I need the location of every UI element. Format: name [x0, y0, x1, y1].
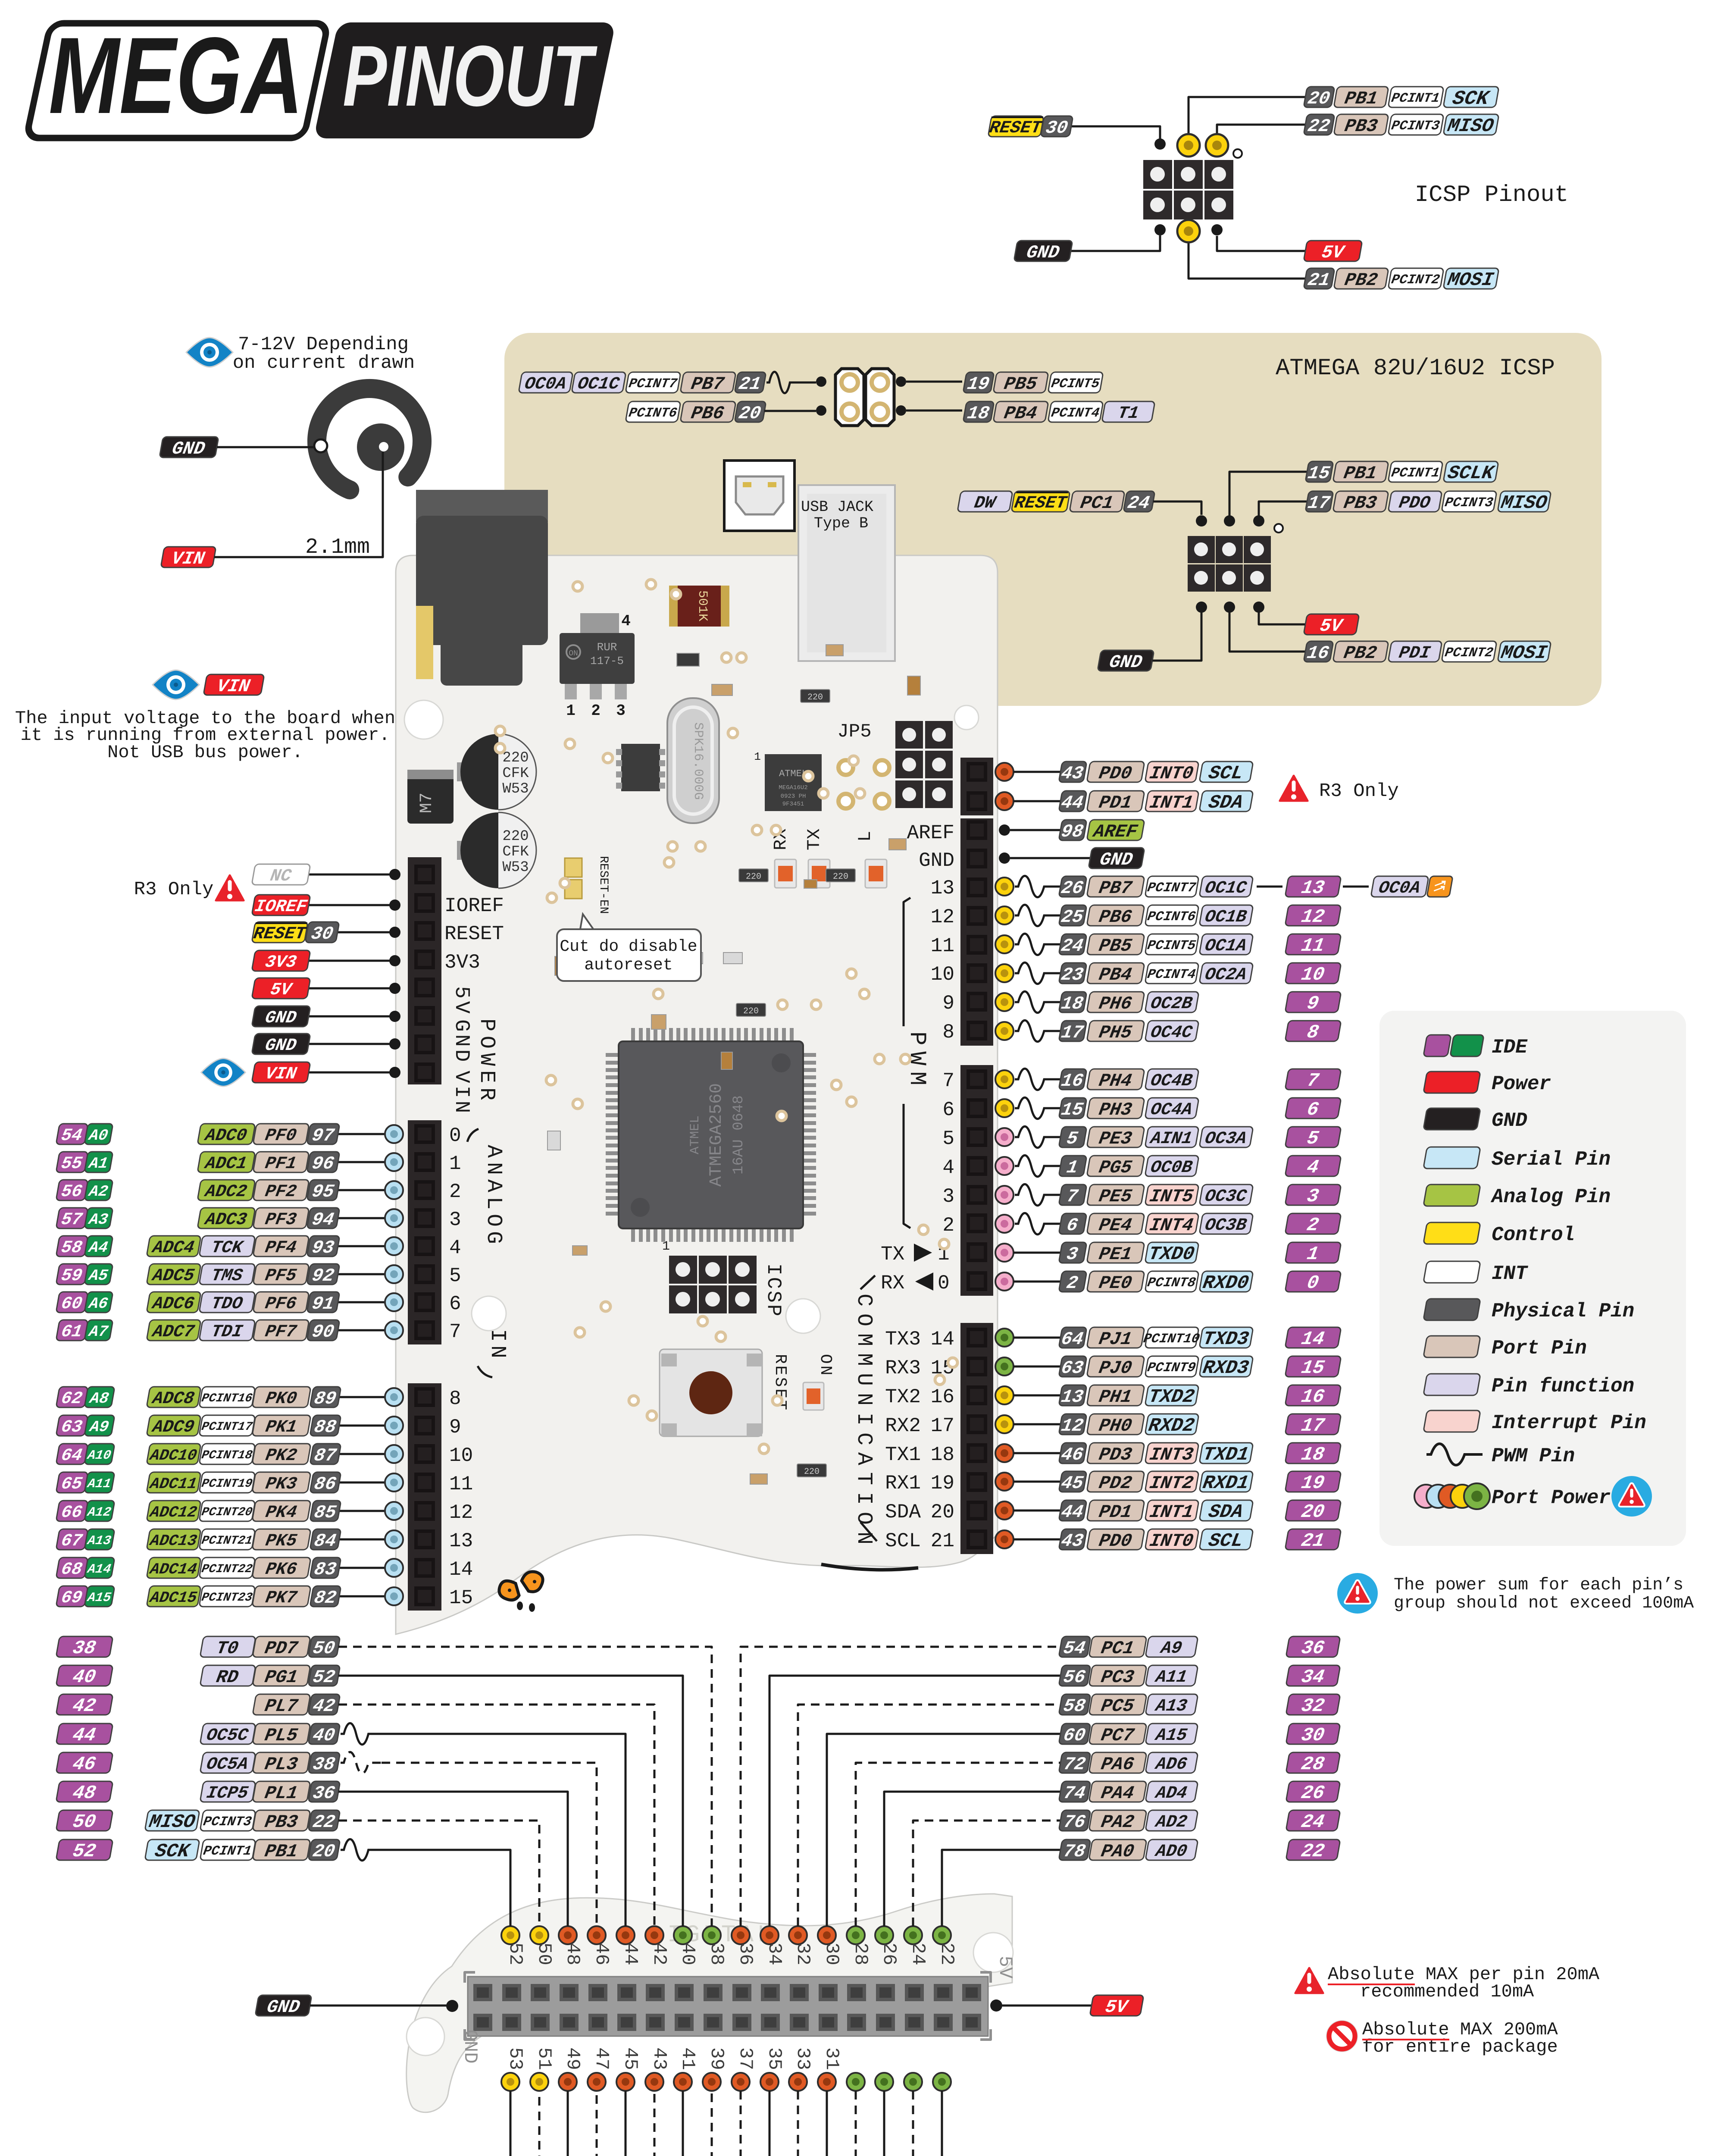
svg-text:47: 47: [591, 2047, 612, 2070]
svg-text:39: 39: [706, 2047, 727, 2070]
svg-text:ADC1: ADC1: [202, 1154, 248, 1174]
svg-text:PK4: PK4: [264, 1503, 298, 1523]
svg-text:Not USB bus power.: Not USB bus power.: [107, 742, 303, 763]
svg-text:ADC12: ADC12: [148, 1504, 198, 1521]
svg-text:48: 48: [562, 1943, 583, 1965]
svg-text:RXD1: RXD1: [1201, 1473, 1250, 1494]
svg-text:RXD2: RXD2: [1147, 1415, 1196, 1437]
svg-text:30: 30: [310, 924, 335, 944]
svg-text:GND: GND: [1107, 652, 1144, 673]
svg-text:26: 26: [878, 1943, 900, 1965]
svg-text:20: 20: [931, 1501, 954, 1523]
svg-text:PK2: PK2: [264, 1446, 298, 1466]
svg-text:A15: A15: [1153, 1726, 1189, 1745]
svg-text:66: 66: [59, 1503, 84, 1523]
svg-text:INT1: INT1: [1148, 1502, 1195, 1523]
svg-text:PK3: PK3: [264, 1474, 298, 1494]
svg-text:MISO: MISO: [147, 1811, 197, 1833]
svg-text:PCINT7: PCINT7: [1146, 881, 1198, 896]
svg-text:55: 55: [59, 1154, 84, 1174]
svg-text:56: 56: [1062, 1667, 1087, 1688]
svg-text:12: 12: [931, 906, 954, 928]
svg-text:PA2: PA2: [1099, 1812, 1135, 1833]
svg-text:9F3451: 9F3451: [782, 801, 804, 808]
svg-text:A3: A3: [87, 1211, 109, 1228]
svg-text:PCINT8: PCINT8: [1146, 1275, 1197, 1291]
svg-text:ADC15: ADC15: [148, 1589, 198, 1607]
svg-text:OC2A: OC2A: [1203, 965, 1248, 985]
svg-text:45: 45: [1060, 1473, 1085, 1494]
svg-text:PK6: PK6: [264, 1560, 298, 1579]
svg-text:VIN: VIN: [263, 1064, 298, 1084]
svg-text:50: 50: [71, 1811, 98, 1833]
svg-text:PK1: PK1: [264, 1417, 298, 1437]
svg-text:63: 63: [59, 1417, 84, 1437]
svg-text:78: 78: [1062, 1841, 1087, 1862]
svg-text:38: 38: [706, 1943, 727, 1965]
svg-text:5V: 5V: [450, 986, 473, 1016]
svg-text:12: 12: [449, 1501, 473, 1524]
svg-text:A9: A9: [88, 1418, 110, 1436]
svg-text:PCINT2: PCINT2: [1390, 273, 1441, 288]
svg-text:PE1: PE1: [1097, 1244, 1133, 1265]
svg-text:PINOUT: PINOUT: [343, 28, 597, 124]
svg-text:18: 18: [1300, 1444, 1326, 1466]
svg-text:TXD2: TXD2: [1147, 1386, 1196, 1408]
svg-text:93: 93: [310, 1238, 336, 1258]
svg-text:PCINT9: PCINT9: [1146, 1360, 1197, 1376]
svg-text:GND: GND: [1492, 1109, 1527, 1132]
svg-text:PD3: PD3: [1097, 1445, 1133, 1465]
svg-text:53: 53: [504, 2047, 526, 2070]
svg-text:11: 11: [449, 1473, 473, 1495]
svg-text:COMMUNICATION: COMMUNICATION: [851, 1294, 876, 1551]
svg-text:57: 57: [59, 1210, 84, 1230]
svg-text:GND: GND: [1025, 242, 1061, 263]
svg-text:1: 1: [662, 1239, 670, 1254]
svg-text:220: 220: [833, 872, 848, 882]
svg-text:54: 54: [1062, 1638, 1087, 1659]
svg-text:PCINT18: PCINT18: [200, 1449, 253, 1462]
svg-text:GND: GND: [170, 439, 206, 459]
svg-text:RESET: RESET: [252, 924, 308, 944]
svg-text:AREF: AREF: [907, 822, 954, 844]
svg-text:20: 20: [737, 403, 763, 424]
svg-text:PCINT3: PCINT3: [1390, 119, 1441, 134]
svg-text:NC: NC: [269, 866, 293, 886]
svg-text:5: 5: [942, 1128, 954, 1150]
svg-text:PF0: PF0: [263, 1126, 298, 1146]
svg-text:2: 2: [449, 1181, 461, 1203]
svg-text:PK0: PK0: [264, 1389, 298, 1409]
svg-text:RESET-EN: RESET-EN: [597, 856, 610, 914]
svg-text:1: 1: [449, 1153, 461, 1175]
svg-text:PCINT17: PCINT17: [200, 1420, 254, 1434]
svg-text:PCINT1: PCINT1: [1390, 466, 1441, 481]
svg-text:36: 36: [311, 1783, 337, 1804]
svg-text:18: 18: [1060, 993, 1085, 1014]
svg-text:30: 30: [821, 1943, 842, 1965]
svg-text:48: 48: [71, 1783, 98, 1804]
svg-text:TXD0: TXD0: [1147, 1244, 1196, 1265]
svg-text:AIN1: AIN1: [1148, 1129, 1194, 1149]
svg-text:PH1: PH1: [1097, 1387, 1133, 1407]
svg-text:Interrupt Pin: Interrupt Pin: [1492, 1412, 1646, 1434]
svg-text:56: 56: [59, 1182, 84, 1202]
svg-text:68: 68: [59, 1560, 84, 1579]
svg-text:RXD3: RXD3: [1201, 1357, 1250, 1379]
svg-text:MOSI: MOSI: [1445, 269, 1495, 291]
svg-text:PD7: PD7: [263, 1638, 300, 1659]
svg-text:PE3: PE3: [1097, 1128, 1133, 1149]
svg-text:17: 17: [931, 1415, 954, 1437]
svg-text:ATMEGA2560: ATMEGA2560: [707, 1083, 726, 1187]
svg-text:TMS: TMS: [210, 1266, 244, 1286]
svg-text:PH0: PH0: [1097, 1416, 1133, 1436]
svg-text:PB3: PB3: [1342, 493, 1378, 514]
svg-text:26: 26: [1300, 1783, 1326, 1804]
svg-text:OC1B: OC1B: [1203, 907, 1248, 927]
svg-text:GND: GND: [450, 1019, 473, 1064]
svg-text:11: 11: [931, 935, 954, 957]
svg-text:PC7: PC7: [1099, 1725, 1136, 1746]
svg-text:PB2: PB2: [1343, 270, 1379, 291]
svg-text:PD1: PD1: [1097, 1502, 1133, 1523]
svg-text:group should not exceed 100mA: group should not exceed 100mA: [1394, 1594, 1694, 1613]
svg-text:3: 3: [942, 1185, 954, 1208]
svg-text:A13: A13: [85, 1534, 112, 1548]
svg-text:PB7: PB7: [689, 374, 726, 395]
svg-text:60: 60: [1062, 1725, 1087, 1746]
svg-text:40: 40: [677, 1943, 698, 1965]
svg-text:PCINT21: PCINT21: [200, 1534, 253, 1548]
svg-text:36: 36: [735, 1943, 756, 1965]
svg-text:98: 98: [1060, 821, 1085, 842]
svg-text:SCK: SCK: [153, 1841, 192, 1862]
svg-text:3: 3: [616, 702, 626, 720]
svg-text:7: 7: [449, 1321, 461, 1343]
svg-text:OC5C: OC5C: [205, 1726, 250, 1745]
svg-text:22: 22: [936, 1943, 957, 1965]
svg-text:54: 54: [59, 1126, 84, 1146]
svg-text:62: 62: [59, 1389, 84, 1409]
svg-text:IOREF: IOREF: [444, 895, 504, 917]
svg-text:INT5: INT5: [1148, 1186, 1195, 1207]
svg-text:PK7: PK7: [264, 1588, 299, 1608]
svg-text:18: 18: [966, 403, 991, 424]
svg-text:5V: 5V: [994, 1956, 1016, 1979]
svg-text:17: 17: [1306, 493, 1332, 514]
svg-text:4: 4: [621, 612, 631, 630]
svg-text:32: 32: [1300, 1695, 1326, 1717]
svg-text:RX1: RX1: [885, 1472, 921, 1495]
svg-text:15: 15: [449, 1587, 473, 1609]
svg-text:38: 38: [71, 1638, 98, 1659]
svg-text:ATMEL: ATMEL: [688, 1116, 703, 1154]
svg-text:PB6: PB6: [1097, 907, 1133, 928]
svg-text:13: 13: [1300, 877, 1326, 899]
svg-text:PL1: PL1: [263, 1783, 299, 1804]
svg-text:PL7: PL7: [263, 1696, 300, 1717]
svg-text:GND: GND: [265, 1997, 301, 2018]
svg-text:PDI: PDI: [1397, 643, 1432, 663]
svg-text:A1: A1: [87, 1155, 109, 1172]
svg-text:IN: IN: [485, 1329, 510, 1362]
svg-text:8: 8: [449, 1388, 461, 1410]
svg-text:ICP5: ICP5: [205, 1783, 250, 1803]
svg-text:SCL: SCL: [1207, 1530, 1245, 1552]
svg-text:5: 5: [449, 1265, 461, 1287]
svg-text:3: 3: [449, 1209, 461, 1231]
svg-text:6: 6: [449, 1293, 461, 1315]
svg-text:PB3: PB3: [263, 1812, 299, 1833]
svg-text:A11: A11: [85, 1477, 112, 1492]
svg-text:RX2: RX2: [885, 1415, 921, 1437]
svg-text:PB3: PB3: [1343, 116, 1379, 137]
svg-text:ATMEGA 82U/16U2 ICSP: ATMEGA 82U/16U2 ICSP: [1276, 355, 1555, 382]
svg-text:A15: A15: [85, 1591, 112, 1605]
svg-text:OC4A: OC4A: [1149, 1100, 1194, 1120]
svg-text:87: 87: [313, 1445, 338, 1466]
svg-text:58: 58: [1062, 1696, 1087, 1717]
svg-text:24: 24: [1060, 936, 1085, 956]
svg-text:PB6: PB6: [689, 403, 726, 424]
svg-text:PE4: PE4: [1097, 1215, 1133, 1236]
svg-text:ADC6: ADC6: [150, 1294, 196, 1314]
svg-text:76: 76: [1062, 1812, 1087, 1833]
svg-text:TX1: TX1: [885, 1444, 921, 1466]
svg-text:16: 16: [1300, 1386, 1326, 1408]
svg-text:ADC4: ADC4: [150, 1238, 196, 1258]
svg-text:ON: ON: [569, 649, 578, 658]
svg-text:MEGA16U2: MEGA16U2: [779, 784, 807, 791]
svg-text:PF4: PF4: [263, 1238, 298, 1258]
svg-text:21: 21: [931, 1530, 954, 1552]
svg-text:PC1: PC1: [1079, 493, 1115, 514]
svg-text:9: 9: [449, 1416, 461, 1438]
svg-text:IDE: IDE: [1492, 1036, 1528, 1059]
svg-text:OC0A: OC0A: [1377, 878, 1422, 898]
svg-text:89: 89: [313, 1388, 338, 1409]
svg-text:58: 58: [59, 1238, 84, 1258]
svg-text:12: 12: [1300, 906, 1326, 928]
svg-text:VIN: VIN: [170, 548, 206, 569]
svg-text:19: 19: [966, 374, 991, 395]
svg-text:33: 33: [792, 2047, 813, 2070]
svg-text:PCINT10: PCINT10: [1142, 1332, 1201, 1347]
svg-text:AD0: AD0: [1153, 1842, 1189, 1861]
svg-text:0: 0: [449, 1125, 461, 1147]
svg-text:26: 26: [1060, 878, 1085, 899]
svg-text:95: 95: [310, 1181, 336, 1202]
svg-text:AREF: AREF: [1091, 821, 1140, 842]
svg-text:30: 30: [1300, 1725, 1326, 1746]
svg-text:ICSP: ICSP: [762, 1263, 785, 1318]
svg-text:PL5: PL5: [263, 1725, 299, 1746]
svg-text:37: 37: [735, 2047, 756, 2070]
svg-text:PF7: PF7: [263, 1322, 298, 1342]
svg-text:PK5: PK5: [264, 1531, 298, 1551]
svg-text:19: 19: [1300, 1473, 1326, 1494]
svg-text:ADC10: ADC10: [148, 1447, 198, 1464]
svg-text:117-5: 117-5: [590, 655, 624, 667]
svg-text:220: 220: [502, 828, 529, 845]
svg-text:ADC7: ADC7: [150, 1322, 196, 1342]
svg-text:INT3: INT3: [1148, 1445, 1195, 1465]
svg-text:35: 35: [763, 2047, 785, 2070]
svg-text:SCL: SCL: [885, 1530, 921, 1552]
svg-text:84: 84: [313, 1531, 338, 1551]
svg-text:23: 23: [1060, 965, 1085, 985]
svg-text:31: 31: [821, 2047, 842, 2070]
svg-text:RUR: RUR: [597, 641, 617, 654]
svg-text:1: 1: [566, 702, 576, 720]
svg-text:A4: A4: [87, 1239, 109, 1257]
svg-text:50: 50: [311, 1638, 337, 1659]
svg-text:W53: W53: [502, 859, 529, 876]
svg-text:INT2: INT2: [1148, 1473, 1195, 1494]
svg-text:94: 94: [310, 1210, 336, 1230]
svg-text:IOREF: IOREF: [253, 897, 309, 917]
svg-text:PH3: PH3: [1097, 1100, 1133, 1120]
svg-text:PF1: PF1: [263, 1154, 298, 1174]
svg-text:A10: A10: [85, 1448, 112, 1463]
svg-text:ADC14: ADC14: [148, 1561, 198, 1578]
svg-text:ADC8: ADC8: [150, 1389, 196, 1409]
svg-text:92: 92: [310, 1266, 336, 1286]
svg-text:GND: GND: [263, 1008, 298, 1028]
svg-text:PCINT1: PCINT1: [202, 1844, 253, 1859]
svg-text:PCINT22: PCINT22: [200, 1563, 253, 1576]
svg-text:ADC2: ADC2: [202, 1182, 248, 1202]
svg-text:64: 64: [1060, 1329, 1085, 1350]
svg-text:50: 50: [533, 1943, 555, 1965]
svg-text:12: 12: [1060, 1416, 1085, 1436]
svg-text:PH6: PH6: [1097, 993, 1133, 1014]
svg-text:GND: GND: [263, 1036, 298, 1056]
svg-text:RESET: RESET: [444, 923, 504, 945]
svg-text:PCINT20: PCINT20: [200, 1506, 253, 1519]
svg-text:0923 PH: 0923 PH: [781, 793, 806, 800]
svg-text:OC0B: OC0B: [1149, 1158, 1194, 1178]
svg-text:14: 14: [931, 1328, 954, 1351]
svg-text:A14: A14: [85, 1562, 112, 1577]
svg-text:PJ0: PJ0: [1097, 1358, 1133, 1379]
svg-text:PE5: PE5: [1097, 1186, 1133, 1207]
svg-text:52: 52: [71, 1841, 98, 1862]
svg-text:22: 22: [1300, 1841, 1326, 1862]
svg-text:36: 36: [1300, 1638, 1326, 1659]
svg-text:14: 14: [1300, 1329, 1326, 1350]
svg-text:4: 4: [942, 1156, 954, 1179]
svg-text:USB JACK: USB JACK: [801, 498, 873, 516]
svg-text:PC3: PC3: [1099, 1667, 1135, 1688]
svg-text:PB4: PB4: [1097, 965, 1133, 985]
svg-text:24: 24: [1126, 493, 1151, 514]
svg-text:SCLK: SCLK: [1446, 463, 1497, 484]
svg-text:PD1: PD1: [1097, 793, 1133, 813]
svg-text:21: 21: [1300, 1530, 1326, 1552]
svg-text:13: 13: [931, 877, 954, 899]
svg-text:PCINT6: PCINT6: [628, 406, 679, 421]
svg-text:6: 6: [942, 1099, 954, 1121]
svg-text:AD4: AD4: [1153, 1783, 1189, 1803]
svg-text:11: 11: [1300, 935, 1326, 957]
svg-text:20: 20: [311, 1841, 337, 1862]
svg-text:67: 67: [59, 1531, 84, 1551]
svg-text:W53: W53: [502, 781, 529, 797]
svg-text:RESET: RESET: [1013, 493, 1069, 513]
svg-text:RX: RX: [881, 1272, 904, 1294]
svg-text:8: 8: [942, 1021, 954, 1044]
svg-text:501K: 501K: [695, 590, 710, 621]
svg-text:VIN: VIN: [450, 1071, 473, 1116]
svg-text:M7: M7: [417, 793, 437, 813]
svg-text:OC4C: OC4C: [1149, 1023, 1194, 1043]
svg-text:PB5: PB5: [1097, 936, 1133, 956]
svg-text:21: 21: [1306, 270, 1332, 291]
svg-text:19: 19: [931, 1472, 954, 1495]
svg-text:TDO: TDO: [210, 1294, 244, 1314]
svg-text:20: 20: [1306, 88, 1332, 109]
svg-text:15: 15: [1306, 463, 1332, 484]
svg-text:PB1: PB1: [1343, 88, 1379, 109]
svg-text:OC3C: OC3C: [1203, 1187, 1248, 1206]
svg-text:A9: A9: [1158, 1639, 1183, 1658]
svg-text:SDA: SDA: [885, 1501, 921, 1523]
svg-text:46: 46: [1060, 1445, 1085, 1465]
svg-text:10: 10: [449, 1445, 473, 1467]
svg-text:T1: T1: [1116, 404, 1140, 423]
svg-text:PB1: PB1: [263, 1841, 299, 1862]
svg-text:220: 220: [804, 1467, 820, 1477]
svg-text:GND: GND: [459, 2029, 481, 2063]
svg-text:PG1: PG1: [263, 1667, 299, 1688]
svg-text:The power sum for each pin’s: The power sum for each pin’s: [1394, 1576, 1683, 1595]
svg-text:PH4: PH4: [1097, 1071, 1133, 1091]
svg-text:TX2: TX2: [885, 1386, 921, 1408]
svg-text:OC1C: OC1C: [1203, 878, 1248, 898]
svg-text:0: 0: [938, 1272, 950, 1294]
svg-text:INT: INT: [1492, 1263, 1528, 1285]
svg-text:MOSI: MOSI: [1499, 642, 1549, 664]
svg-text:PF6: PF6: [263, 1294, 298, 1314]
svg-text:PE0: PE0: [1097, 1273, 1133, 1294]
svg-text:16: 16: [931, 1386, 954, 1408]
svg-text:13: 13: [1060, 1387, 1085, 1407]
svg-text:220: 220: [807, 693, 823, 702]
svg-text:42: 42: [71, 1695, 98, 1717]
svg-text:A12: A12: [85, 1505, 112, 1520]
svg-text:TX: TX: [881, 1243, 904, 1266]
svg-text:MISO: MISO: [1445, 116, 1495, 137]
svg-text:44: 44: [1060, 793, 1085, 813]
svg-text:INT0: INT0: [1148, 763, 1195, 784]
svg-text:43: 43: [1060, 763, 1085, 784]
svg-text:ADC9: ADC9: [150, 1417, 196, 1437]
svg-text:30: 30: [1044, 118, 1070, 138]
svg-text:16: 16: [1060, 1071, 1085, 1091]
svg-text:72: 72: [1062, 1754, 1087, 1775]
svg-text:POWER: POWER: [474, 1018, 499, 1105]
svg-text:A6: A6: [87, 1295, 109, 1313]
svg-text:44: 44: [619, 1943, 641, 1965]
svg-text:38: 38: [311, 1754, 337, 1775]
svg-text:Serial Pin: Serial Pin: [1492, 1148, 1611, 1171]
svg-text:42: 42: [648, 1943, 670, 1965]
svg-text:2.1mm: 2.1mm: [305, 535, 370, 560]
svg-text:82: 82: [313, 1588, 338, 1608]
